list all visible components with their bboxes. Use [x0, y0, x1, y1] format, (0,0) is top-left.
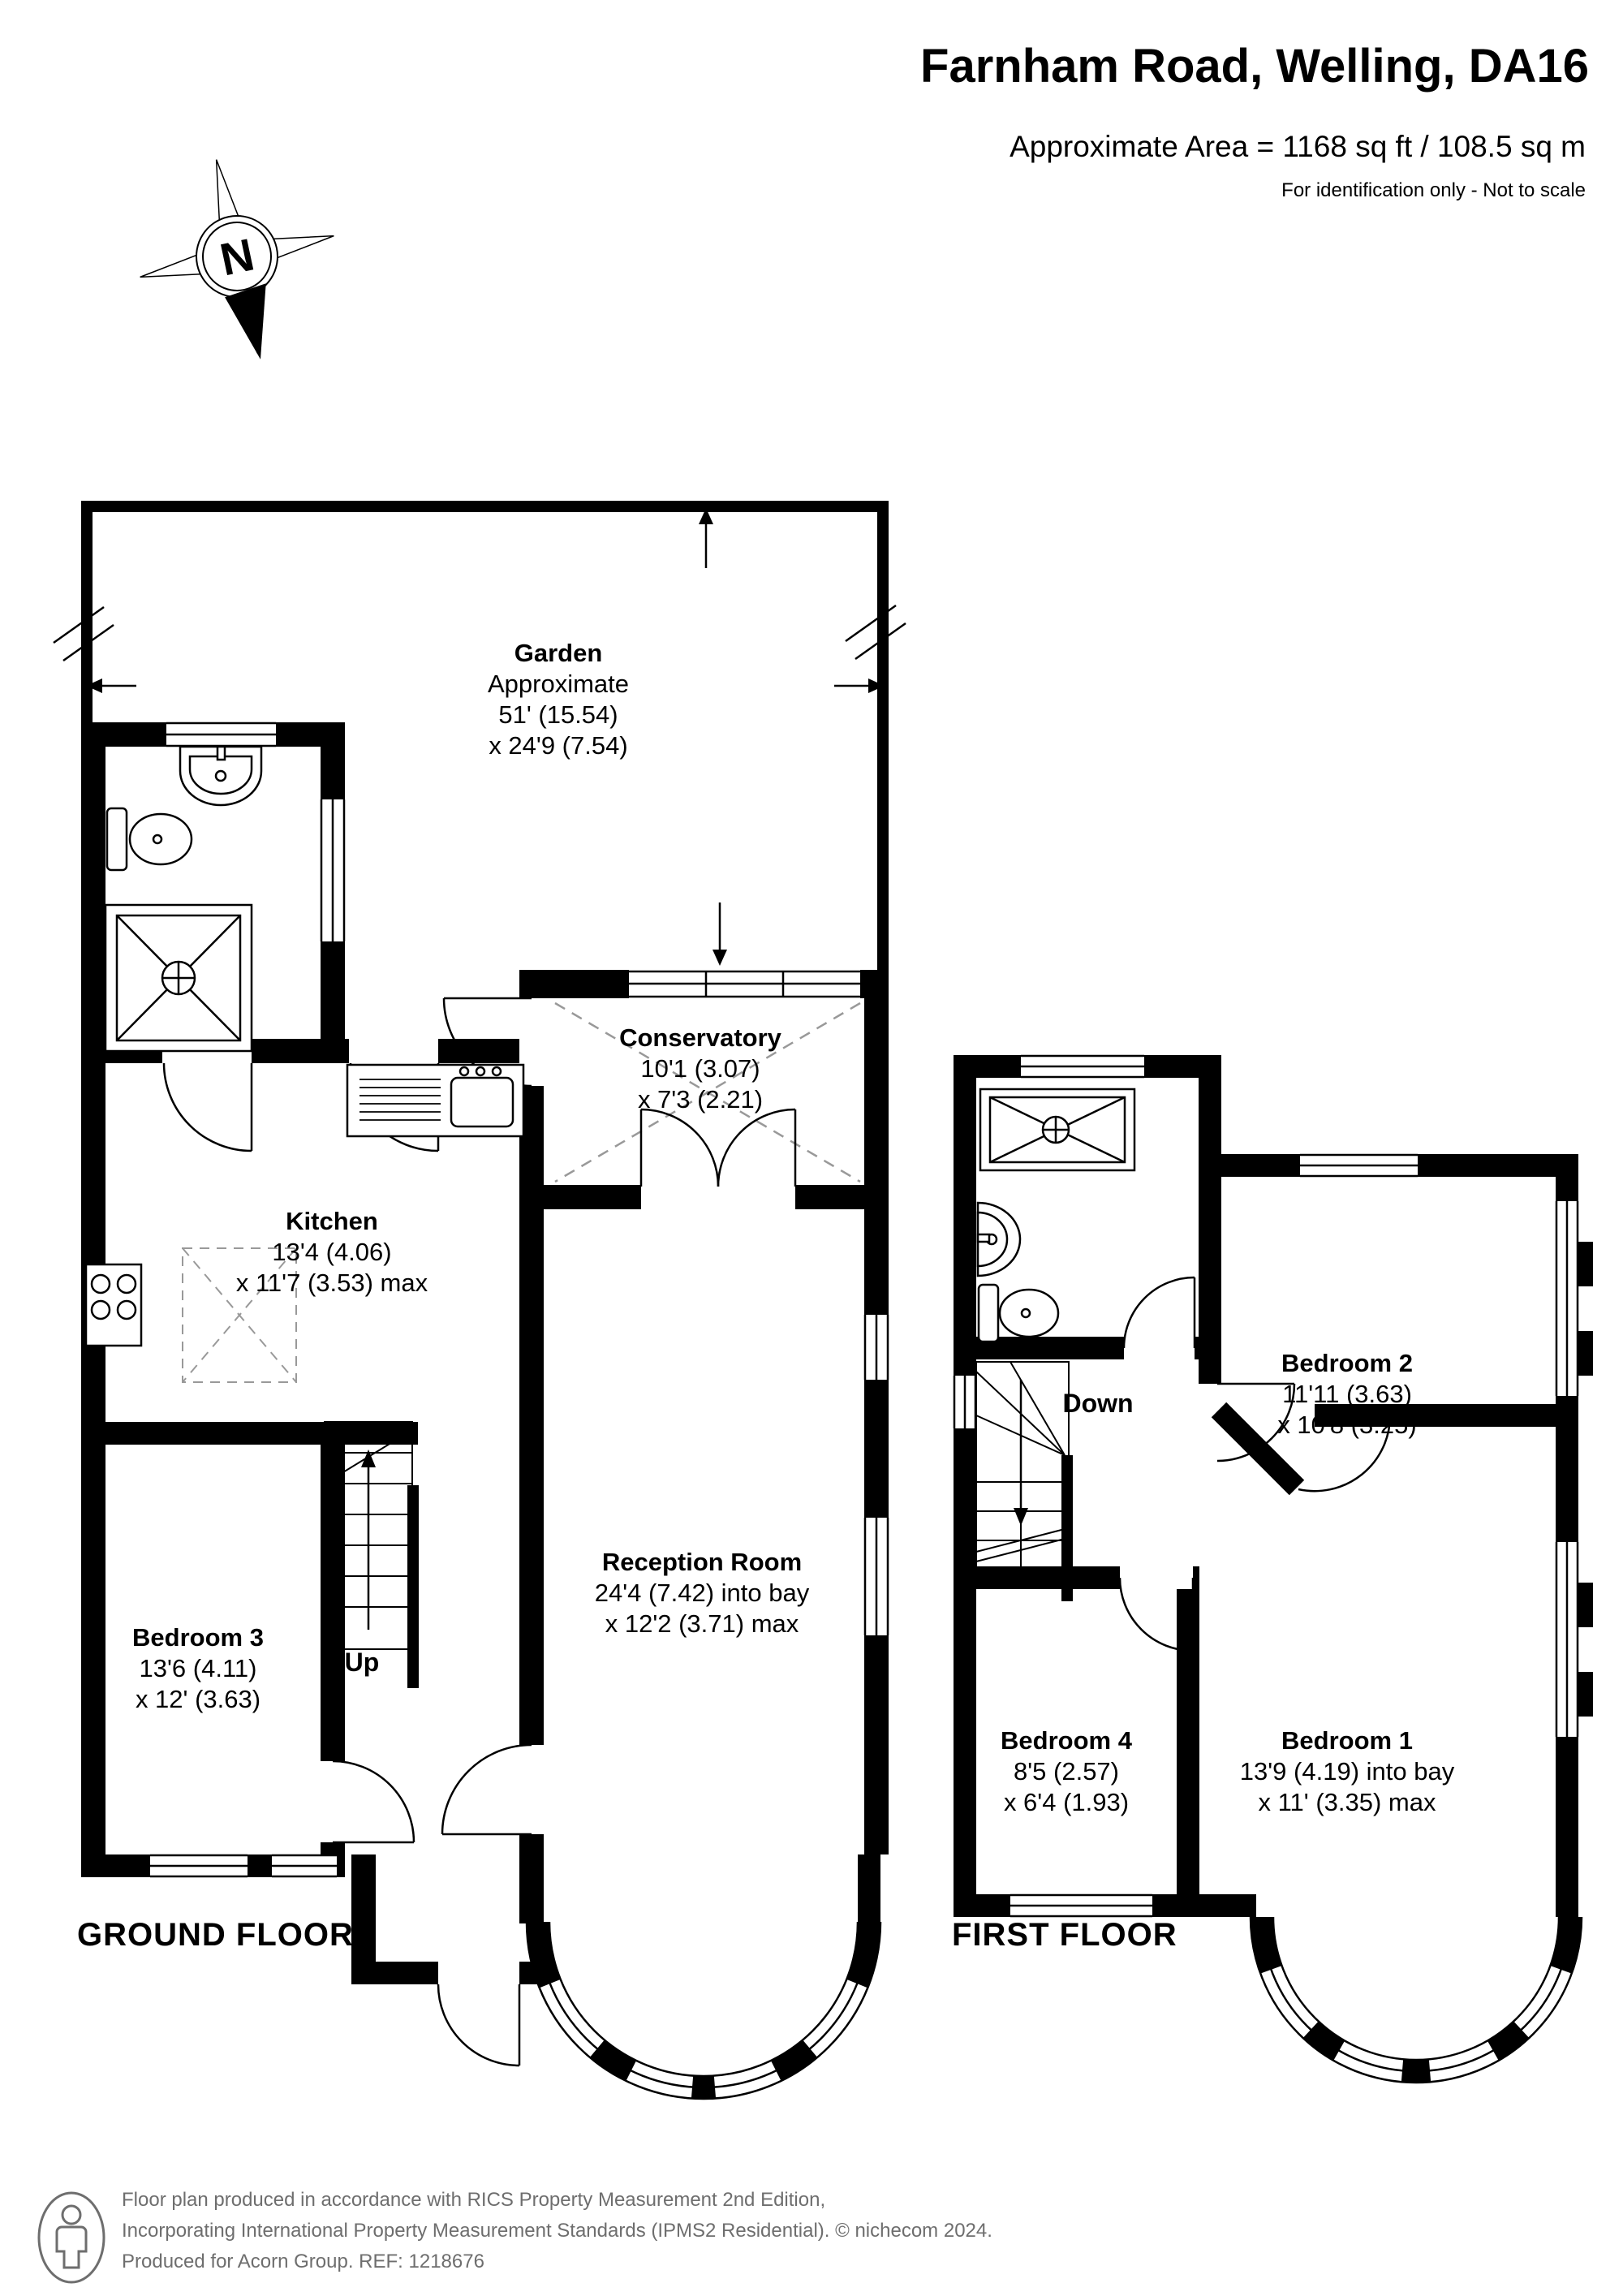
footer-line-3: Produced for Acorn Group. REF: 1218676 — [122, 2246, 992, 2277]
compass-rose-icon: N — [119, 139, 355, 380]
bedroom3-door-opening — [321, 1761, 345, 1842]
bedroom1-window-right — [1556, 1542, 1593, 1737]
compass-south-point — [224, 283, 282, 364]
conservatory-double-door-opening — [641, 1185, 795, 1209]
kitchen-sink-unit-icon — [347, 1065, 523, 1136]
kitchen-label: Kitchen 13'4 (4.06) x 11'7 (3.53) max — [186, 1206, 478, 1299]
bedroom3-front-window-1 — [150, 1854, 248, 1877]
bedroom2-window-right — [1556, 1201, 1593, 1396]
reception-room-label: Reception Room 24'4 (7.42) into bay x 12… — [540, 1547, 864, 1639]
garden-label: Garden Approximate 51' (15.54) x 24'9 (7… — [437, 638, 680, 761]
bedroom4-door-opening — [1120, 1566, 1193, 1589]
bay-window-ground — [527, 1922, 880, 2099]
footer-line-1: Floor plan produced in accordance with R… — [122, 2185, 992, 2216]
conservatory-label: Conservatory 10'1 (3.07) x 7'3 (2.21) — [570, 1023, 830, 1115]
toilet-icon-ground — [107, 808, 192, 870]
reception-door-arc — [442, 1745, 532, 1834]
outbuilding-door-arc — [164, 1063, 252, 1151]
conservatory-window-band — [629, 970, 860, 998]
approximate-area: Approximate Area = 1168 sq ft / 108.5 sq… — [1010, 130, 1586, 164]
page-title: Farnham Road, Welling, DA16 — [920, 39, 1589, 93]
floorplan-page: N — [0, 0, 1623, 2296]
disclaimer-note: For identification only - Not to scale — [1281, 179, 1586, 202]
kitchen-back-door-opening — [349, 1039, 438, 1063]
front-door-arc — [438, 1984, 519, 2066]
shower-icon-ground — [105, 905, 252, 1051]
stairs-up-label: Up — [321, 1648, 403, 1678]
reception-door-opening — [519, 1745, 544, 1834]
footer-disclaimer: Floor plan produced in accordance with R… — [122, 2185, 992, 2277]
stairs-down-label: Down — [1041, 1389, 1155, 1419]
bedroom4-window-bottom — [1010, 1894, 1152, 1917]
bedroom2-label: Bedroom 2 11'11 (3.63) x 10'8 (3.25) — [1201, 1348, 1493, 1441]
ground-floor-label: GROUND FLOOR — [77, 1917, 354, 1954]
conservatory-double-door-arcs — [641, 1109, 795, 1187]
bedroom1-label: Bedroom 1 13'9 (4.19) into bay x 11' (3.… — [1177, 1725, 1518, 1818]
bedroom3-label: Bedroom 3 13'6 (4.11) x 12' (3.63) — [76, 1622, 320, 1715]
reception-side-window-2 — [864, 1518, 889, 1635]
bathroom-ff-window-top — [1021, 1055, 1144, 1078]
sink-icon-ff — [978, 1203, 1020, 1276]
front-door-opening — [438, 1962, 519, 1984]
landing-window-left — [954, 1376, 976, 1428]
reception-side-window-1 — [864, 1315, 889, 1380]
footer-line-2: Incorporating International Property Mea… — [122, 2216, 992, 2246]
first-floor-label: FIRST FLOOR — [952, 1917, 1177, 1954]
toilet-icon-ff — [979, 1285, 1058, 1342]
outbuilding-window-right — [321, 799, 345, 941]
bay-window-first — [1251, 1917, 1582, 2083]
hob-icon — [86, 1264, 141, 1346]
bedroom3-front-window-2 — [272, 1854, 337, 1877]
bedroom4-label: Bedroom 4 8'5 (2.57) x 6'4 (1.93) — [936, 1725, 1196, 1818]
nichecom-person-icon — [39, 2193, 104, 2282]
bedroom2-window-top — [1300, 1154, 1418, 1177]
bathroom-ff-door-opening — [1124, 1337, 1195, 1359]
sink-icon-ground — [180, 747, 261, 805]
outbuilding-window-top — [166, 722, 276, 747]
shower-icon-ff — [980, 1089, 1134, 1170]
